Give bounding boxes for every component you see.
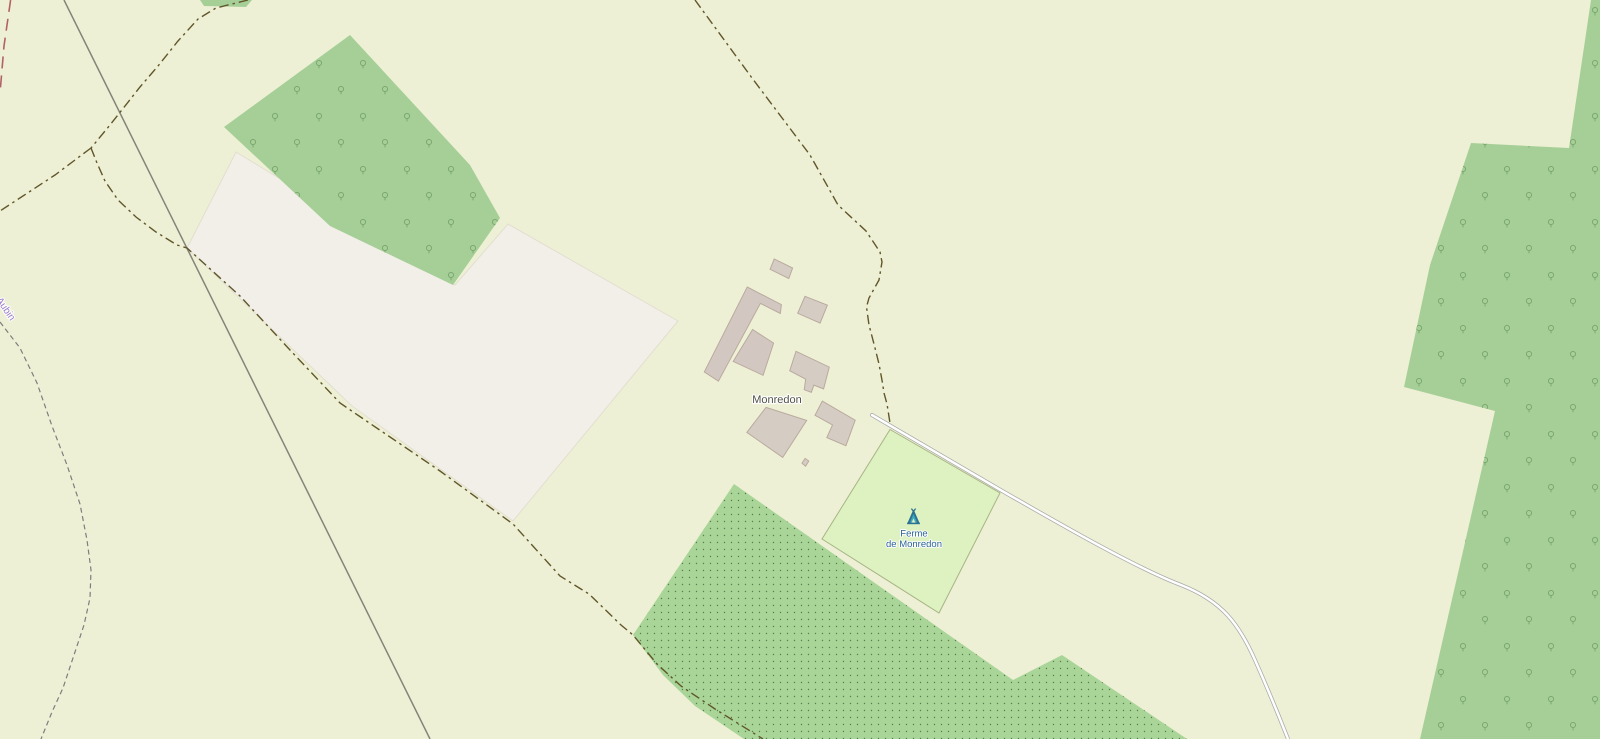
svg-text:de Monredon: de Monredon xyxy=(886,539,942,550)
svg-text:Monredon: Monredon xyxy=(752,394,802,406)
svg-text:Ferme: Ferme xyxy=(900,528,927,539)
